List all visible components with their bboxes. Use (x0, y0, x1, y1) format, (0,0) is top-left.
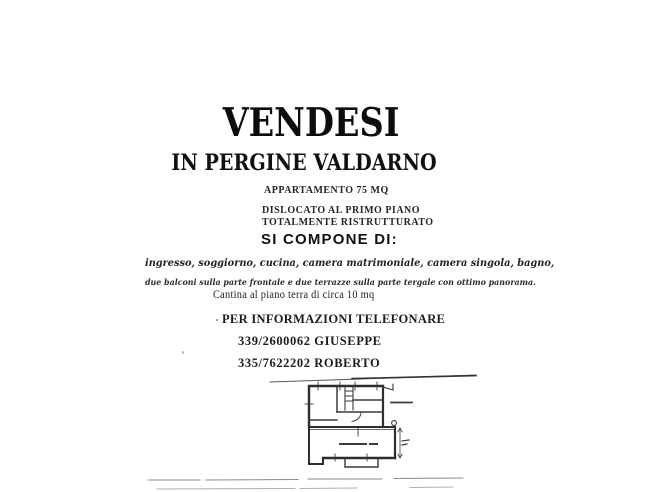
compose-heading: SI COMPONE DI: (261, 232, 398, 247)
floor-plan-sketch-icon (0, 362, 648, 492)
detail-floor: DISLOCATO AL PRIMO PIANO (262, 206, 420, 216)
detail-apartment-size: APPARTAMENTO 75 MQ (264, 186, 389, 196)
scan-speck (216, 319, 218, 321)
phone-line-giuseppe: 339/2600062 GIUSEPPE (238, 335, 382, 348)
detail-renovated: TOTALMENTE RISTRUTTURATO (262, 218, 434, 228)
contact-heading: PER INFORMAZIONI TELEFONARE (222, 313, 445, 326)
page-title: VENDESI (44, 104, 579, 143)
cellar-line: Cantina al piano terra di circa 10 mq (213, 290, 374, 302)
rooms-list-line1: ingresso, soggiorno, cucina, camera matr… (145, 258, 554, 269)
rooms-list-line2: due balconi sulla parte frontale e due t… (145, 279, 536, 288)
scan-speck (182, 351, 184, 354)
location-subtitle: IN PERGINE VALDARNO (40, 152, 569, 174)
scanned-sale-flyer: VENDESI IN PERGINE VALDARNO APPARTAMENTO… (0, 0, 648, 492)
